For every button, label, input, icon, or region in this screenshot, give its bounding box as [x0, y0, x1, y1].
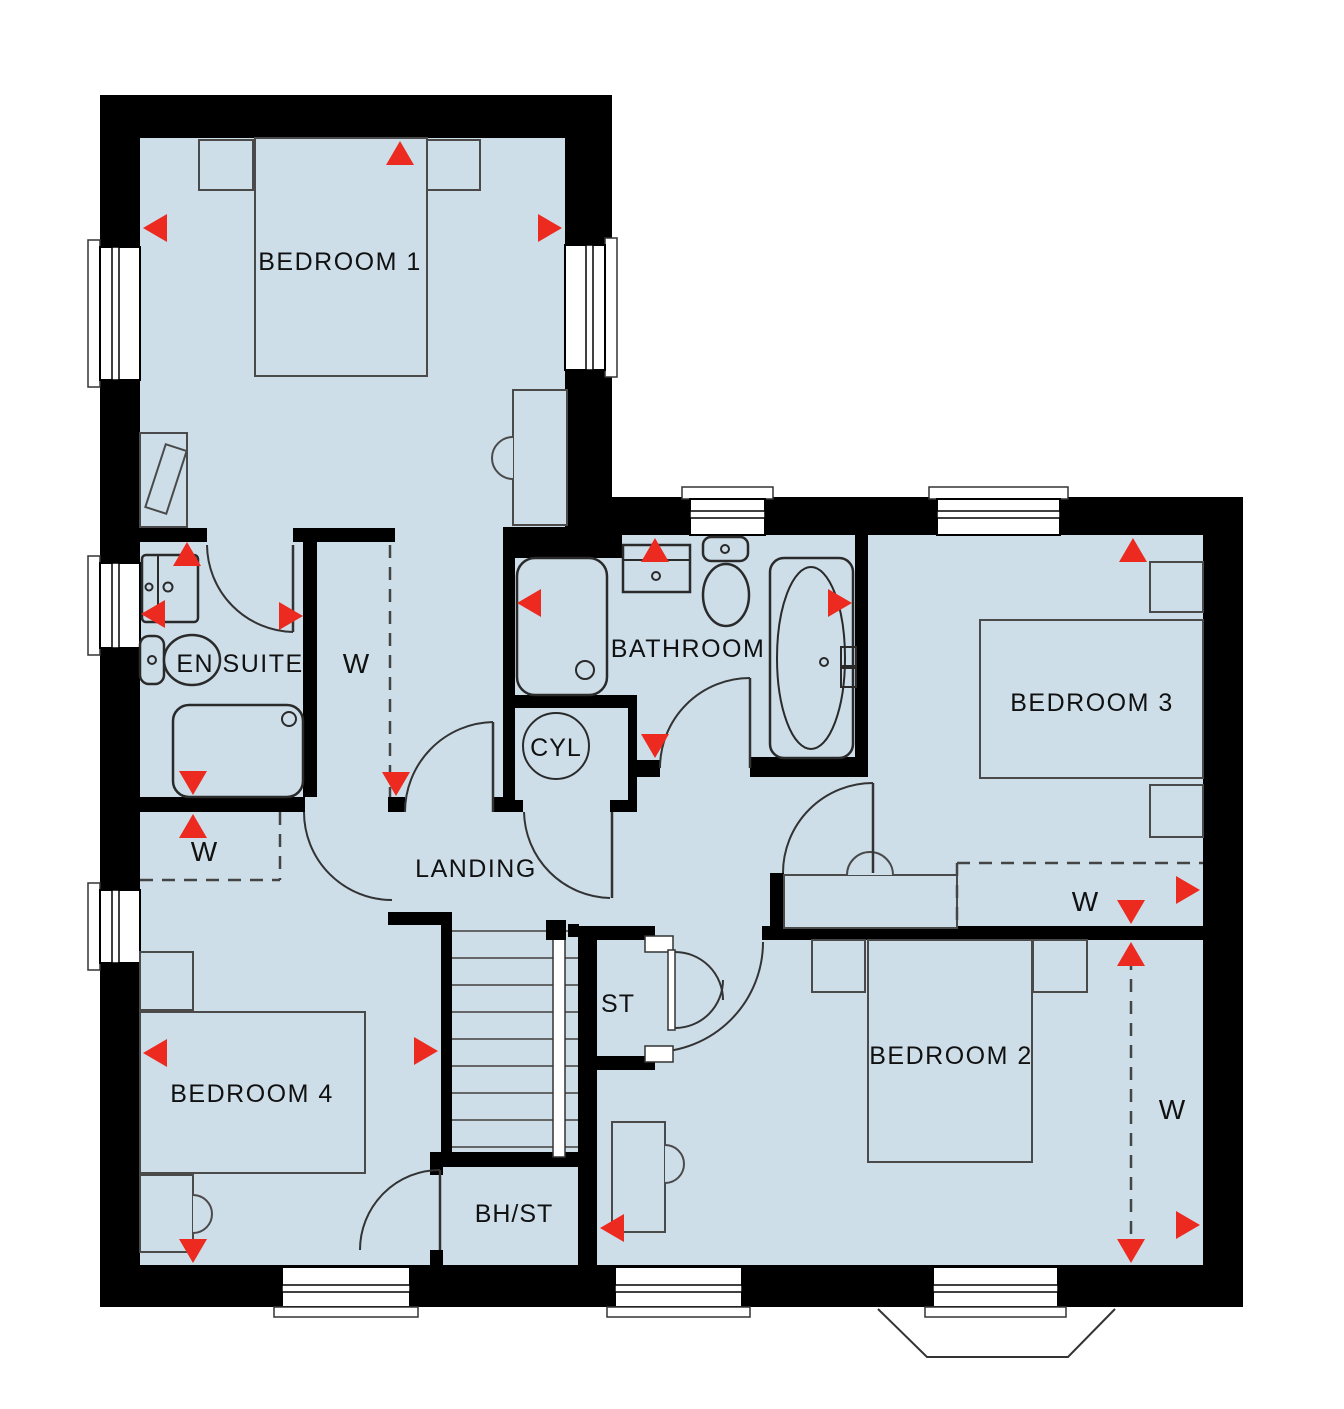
label-wardrobe-1: W	[343, 648, 370, 679]
label-wardrobe-3: W	[1072, 886, 1099, 917]
bathroom-bath	[770, 558, 856, 758]
desk-bedroom1	[513, 390, 567, 525]
label-bedroom4: BEDROOM 4	[170, 1080, 334, 1108]
label-wardrobe-2: W	[191, 836, 218, 867]
window-bedroom4-bottom	[274, 1267, 418, 1317]
window-bathroom-top	[682, 487, 773, 535]
nightstand	[199, 140, 253, 190]
window-ensuite-left	[88, 556, 140, 655]
label-bhst: BH/ST	[475, 1200, 554, 1228]
dressing-table-bedroom3	[784, 875, 957, 928]
label-ensuite: EN SUITE	[176, 650, 303, 678]
wall-ensuite-east	[303, 542, 317, 797]
wall-stairs-south	[430, 1152, 597, 1167]
window-bedroom1-left	[88, 240, 140, 387]
label-wardrobe-4: W	[1159, 1094, 1186, 1125]
wall-cyl-south-a	[503, 800, 523, 812]
stair-handrail	[553, 926, 565, 1157]
nightstand	[140, 952, 193, 1010]
nightstand	[427, 140, 480, 190]
floor-plan-page: BEDROOM 1 EN SUITE W BATHROOM CYL BEDROO…	[0, 0, 1344, 1409]
wall-stairs-west	[441, 912, 452, 1157]
bathroom-shower	[517, 558, 607, 695]
label-bedroom3: BEDROOM 3	[1010, 689, 1174, 717]
wall-bhst-west-b	[430, 1250, 443, 1267]
nightstand	[1150, 785, 1203, 837]
desk-bedroom2	[612, 1122, 665, 1232]
stair-newel-post-small	[568, 924, 579, 937]
wall-bedroom1-south-b	[293, 528, 395, 542]
bathroom-toilet	[703, 537, 749, 626]
wall-stairs-east	[578, 926, 597, 1267]
wall-ensuite-south	[140, 797, 305, 812]
label-store: ST	[601, 990, 635, 1018]
nightstand	[1033, 940, 1087, 992]
wall-post-a	[388, 797, 405, 812]
wall-bedroom1-south-a	[140, 528, 207, 542]
nightstand	[1150, 562, 1203, 612]
wall-bathroom-south-stub	[628, 760, 660, 777]
window-bedroom3-top	[929, 487, 1068, 535]
wall-top	[100, 95, 612, 138]
label-landing: LANDING	[415, 855, 537, 883]
wall-bathroom-nw-block	[503, 527, 622, 558]
label-bathroom: BATHROOM	[611, 635, 766, 663]
label-bedroom1: BEDROOM 1	[258, 248, 422, 276]
wall-right	[1203, 497, 1243, 1307]
window-bedroom1-right	[565, 238, 617, 377]
wall-cyl-north	[503, 695, 637, 708]
wall-top-right	[565, 497, 1243, 535]
floor-plan-svg: BEDROOM 1 EN SUITE W BATHROOM CYL BEDROO…	[0, 0, 1344, 1409]
window-bedroom4-left	[88, 883, 140, 970]
wall-bathroom-west	[503, 558, 515, 812]
nightstand	[812, 940, 865, 992]
stair-newel-post	[546, 920, 566, 940]
label-bedroom2: BEDROOM 2	[869, 1042, 1033, 1070]
label-cylinder: CYL	[530, 734, 582, 762]
wall-bathroom-south	[750, 757, 868, 777]
window-bedroom2-bottom-left	[607, 1267, 750, 1317]
wall-cyl-south-b	[610, 800, 637, 812]
